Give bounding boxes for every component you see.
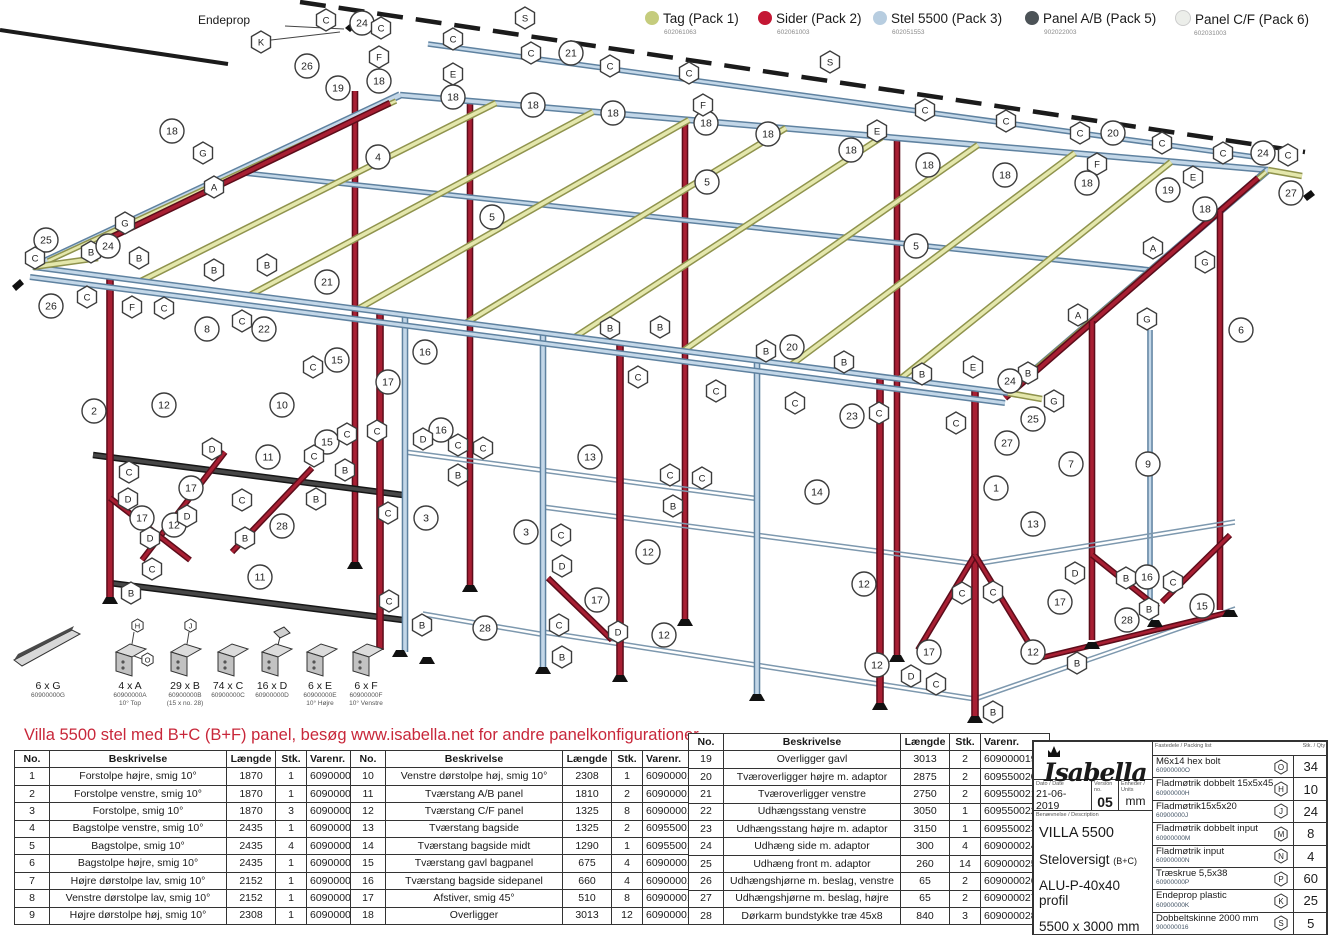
- fastener-qty: 24: [1293, 801, 1327, 822]
- callout-hex-G: G: [194, 142, 213, 164]
- callout-hex-C: C: [1153, 132, 1172, 154]
- svg-text:18: 18: [447, 92, 459, 104]
- cell: 2308: [227, 907, 276, 924]
- svg-text:5: 5: [913, 241, 919, 253]
- cell: 5: [15, 837, 50, 854]
- parts-table-row: 25Udhæng front m. adaptor26014609000025: [689, 855, 1050, 872]
- col-header: Beskrivelse: [724, 734, 901, 751]
- svg-text:C: C: [311, 452, 318, 463]
- svg-text:18: 18: [1199, 204, 1211, 216]
- svg-text:11: 11: [263, 452, 274, 464]
- callout-hex-C: C: [444, 28, 463, 50]
- parts-table-row: 4Bagstolpe venstre, smig 10°243516090000…: [15, 820, 376, 837]
- bracket-part-icon: [250, 618, 294, 680]
- callout-hex-C: C: [953, 582, 972, 604]
- cell: 510: [563, 890, 612, 907]
- col-header: Stk.: [950, 734, 981, 751]
- callout-circle-24: 24: [350, 11, 374, 35]
- parts-table-row: 8Venstre dørstolpe lav, smig 10°21521609…: [15, 890, 376, 907]
- col-header: No.: [689, 734, 724, 751]
- callout-hex-C: C: [693, 467, 712, 489]
- svg-text:O: O: [1278, 762, 1284, 771]
- fastener-name-cell: Træskrue 5,5x3860900000P: [1153, 868, 1273, 889]
- cell: Overligger: [386, 907, 563, 924]
- callout-hex-G: G: [116, 212, 135, 234]
- parts-table-row: 14Tværstang bagside midt12901609550014: [351, 837, 712, 854]
- callout-circle-1: 1: [984, 476, 1008, 500]
- svg-text:18: 18: [999, 170, 1011, 182]
- cell: Forstolpe venstre, smig 10°: [50, 785, 227, 802]
- callout-hex-S: S: [821, 51, 840, 73]
- callout-hex-B: B: [651, 316, 670, 338]
- cell: Udhængsstang venstre: [724, 803, 901, 820]
- fastener-name: Fladmøtrik input: [1156, 847, 1273, 857]
- svg-text:B: B: [211, 266, 217, 277]
- cell: 1: [15, 768, 50, 785]
- fastener-code: 900000016: [1156, 924, 1273, 931]
- svg-text:B: B: [342, 466, 348, 477]
- callout-hex-C: C: [380, 590, 399, 612]
- parts-table-header: No.BeskrivelseLængdeStk.Varenr.: [351, 751, 712, 768]
- svg-text:C: C: [635, 373, 642, 384]
- legend-label: Stel 5500 (Pack 3): [891, 11, 1002, 26]
- callout-circle-24: 24: [998, 369, 1022, 393]
- foot-glyph: [889, 655, 905, 662]
- cell: 14: [950, 855, 981, 872]
- cell: 4: [950, 838, 981, 855]
- cell: 1: [276, 768, 307, 785]
- svg-text:D: D: [125, 495, 132, 506]
- callout-hex-C: C: [233, 489, 252, 511]
- title-block: Isabella Dato / Date 21-06-2019 Version …: [1032, 740, 1328, 935]
- cell: 675: [563, 855, 612, 872]
- svg-text:C: C: [990, 588, 997, 599]
- endeprop-glyph: [12, 279, 24, 291]
- cell: Tværstang A/B panel: [386, 785, 563, 802]
- svg-text:C: C: [1285, 151, 1292, 162]
- svg-text:P: P: [1279, 874, 1284, 883]
- parts-table-row: 22Udhængsstang venstre30501609550022: [689, 803, 1050, 820]
- svg-text:C: C: [556, 621, 563, 632]
- svg-text:M: M: [1278, 830, 1285, 839]
- svg-text:3: 3: [523, 527, 529, 539]
- callout-hex-C: C: [707, 380, 726, 402]
- fastener-badge-cell: P: [1273, 868, 1293, 889]
- svg-text:12: 12: [858, 579, 870, 591]
- cell: 1: [612, 768, 643, 785]
- cell: 3: [950, 907, 981, 924]
- date-value: 21-06-2019: [1034, 787, 1091, 810]
- cell: 840: [901, 907, 950, 924]
- svg-text:18: 18: [845, 145, 857, 157]
- svg-text:24: 24: [356, 18, 368, 30]
- fastener-badge-P: P: [1273, 871, 1289, 887]
- callout-circle-12: 12: [1021, 640, 1045, 664]
- parts-table-header: No.BeskrivelseLængdeStk.Varenr.: [15, 751, 376, 768]
- callout-hex-C: C: [661, 464, 680, 486]
- callout-hex-D: D: [609, 621, 628, 643]
- cell: Tværstang gavl bagpanel: [386, 855, 563, 872]
- pack-color-dot: [1175, 10, 1191, 26]
- svg-text:4: 4: [375, 152, 381, 164]
- pack-legend: Tag (Pack 1)602061063Sider (Pack 2)60206…: [645, 10, 1325, 50]
- cell: 17: [351, 890, 386, 907]
- svg-text:24: 24: [102, 241, 114, 253]
- callout-hex-D: D: [119, 488, 138, 510]
- svg-text:C: C: [126, 468, 133, 479]
- callout-hex-C: C: [1071, 122, 1090, 144]
- cell: Venstre dørstolpe lav, smig 10°: [50, 890, 227, 907]
- pack-color-dot: [1025, 11, 1039, 25]
- cell: Tværoverligger højre m. adaptor: [724, 768, 901, 785]
- callout-hex-B: B: [130, 247, 149, 269]
- packing-list-row: Dobbeltskinne 2000 mm900000016S5: [1153, 913, 1327, 934]
- callout-circle-23: 23: [840, 404, 864, 428]
- callout-hex-C: C: [474, 437, 493, 459]
- cell: Tværoverligger venstre: [724, 786, 901, 803]
- svg-text:C: C: [876, 409, 883, 420]
- svg-text:F: F: [129, 303, 135, 314]
- svg-text:C: C: [667, 471, 674, 482]
- callout-hex-B: B: [757, 340, 776, 362]
- fastener-code: 60900000P: [1156, 879, 1273, 886]
- fastener-badge-S: S: [1273, 915, 1289, 931]
- svg-text:S: S: [827, 58, 833, 69]
- svg-text:C: C: [1170, 578, 1177, 589]
- cell: 1325: [563, 803, 612, 820]
- callout-hex-C: C: [368, 420, 387, 442]
- svg-text:H: H: [135, 621, 140, 630]
- callout-hex-C: C: [449, 434, 468, 456]
- parts-table-row: 13Tværstang bagside13252609550013: [351, 820, 712, 837]
- fastener-name: M6x14 hex bolt: [1156, 757, 1273, 767]
- svg-text:25: 25: [1027, 414, 1039, 426]
- cell: 2: [612, 820, 643, 837]
- cell: 2: [950, 890, 981, 907]
- callout-circle-17: 17: [376, 370, 400, 394]
- cell: 1: [950, 803, 981, 820]
- cell: 4: [15, 820, 50, 837]
- fitting-icons-row: 6 x G60900000G HO4 x A60900000A10° Top J…: [0, 618, 420, 726]
- fitting-item: 6 x F60900000F10° Venstre: [341, 618, 391, 708]
- parts-table-row: 6Bagstolpe højre, smig 10°24351609000006: [15, 855, 376, 872]
- callout-circle-5: 5: [480, 205, 504, 229]
- fastener-name: Træskrue 5,5x38: [1156, 869, 1273, 879]
- callout-hex-C: C: [1214, 142, 1233, 164]
- svg-text:B: B: [763, 347, 769, 358]
- cell: 1325: [563, 820, 612, 837]
- svg-text:16: 16: [1141, 572, 1153, 584]
- svg-text:E: E: [450, 70, 456, 81]
- svg-text:10: 10: [276, 400, 288, 412]
- callout-circle-17: 17: [917, 640, 941, 664]
- description-line: ALU-P-40x40 profil: [1034, 878, 1152, 908]
- svg-text:G: G: [199, 149, 206, 160]
- callout-hex-E: E: [444, 63, 463, 85]
- fastener-name-cell: Fladmøtrik dobbelt input60900000M: [1153, 823, 1273, 844]
- callout-hex-A: A: [1069, 304, 1088, 326]
- fastener-badge-M: M: [1273, 826, 1289, 842]
- cell: 27: [689, 890, 724, 907]
- cell: 10: [351, 768, 386, 785]
- callout-hex-F: F: [123, 296, 142, 318]
- svg-text:9: 9: [1145, 459, 1151, 471]
- callout-circle-27: 27: [995, 431, 1019, 455]
- callout-circle-13: 13: [1021, 512, 1045, 536]
- callout-hex-C: C: [786, 392, 805, 414]
- endeprop-label: Endeprop: [198, 13, 250, 27]
- fitting-item: 74 x C60900000C: [206, 618, 250, 700]
- svg-text:C: C: [239, 317, 246, 328]
- cell: 25: [689, 855, 724, 872]
- parts-table-1: No.BeskrivelseLængdeStk.Varenr.1Forstolp…: [14, 750, 376, 925]
- svg-text:18: 18: [922, 160, 934, 172]
- svg-text:8: 8: [204, 324, 210, 336]
- cell: 16: [351, 872, 386, 889]
- svg-text:C: C: [933, 680, 940, 691]
- cell: 8: [612, 803, 643, 820]
- svg-text:21: 21: [321, 277, 333, 289]
- svg-text:C: C: [953, 419, 960, 430]
- svg-text:S: S: [522, 14, 528, 25]
- parts-table-row: 24Udhæng side m. adaptor3004609000024: [689, 838, 1050, 855]
- svg-text:26: 26: [301, 61, 313, 73]
- callout-circle-3: 3: [414, 506, 438, 530]
- callout-hex-K: K: [252, 31, 271, 53]
- fastener-code: 60900000J: [1156, 812, 1273, 819]
- legend-code: 602061063: [664, 29, 739, 36]
- fitting-code: 60900000A: [104, 692, 156, 700]
- callout-circle-18: 18: [756, 122, 780, 146]
- callout-circle-20: 20: [780, 335, 804, 359]
- svg-text:B: B: [670, 502, 676, 513]
- svg-text:20: 20: [786, 342, 798, 354]
- svg-text:C: C: [607, 62, 614, 73]
- svg-text:18: 18: [373, 76, 385, 88]
- cell: 8: [612, 890, 643, 907]
- cell: 2: [612, 785, 643, 802]
- callout-circle-18: 18: [441, 85, 465, 109]
- version-value: 05: [1092, 793, 1118, 810]
- fitting-qty: 16 x D: [250, 680, 294, 692]
- cell: 3150: [901, 820, 950, 837]
- svg-text:S: S: [1279, 919, 1284, 928]
- parts-table-row: 16Tværstang bagside sidepanel66046090000…: [351, 872, 712, 889]
- cell: 2: [950, 768, 981, 785]
- svg-text:C: C: [84, 293, 91, 304]
- svg-text:C: C: [374, 427, 381, 438]
- svg-text:H: H: [1278, 785, 1284, 794]
- callout-hex-C: C: [1164, 571, 1183, 593]
- svg-text:G: G: [121, 219, 128, 230]
- callout-hex-D: D: [178, 505, 197, 527]
- foot-glyph: [102, 597, 118, 604]
- fastener-badge-cell: J: [1273, 801, 1293, 822]
- callout-hex-C: C: [379, 502, 398, 524]
- foot-glyph: [612, 675, 628, 682]
- svg-text:13: 13: [1027, 519, 1039, 531]
- callout-circle-22: 22: [252, 317, 276, 341]
- svg-text:5: 5: [489, 212, 495, 224]
- cell: 2750: [901, 786, 950, 803]
- callout-hex-C: C: [338, 423, 357, 445]
- callout-hex-C: C: [1279, 144, 1298, 166]
- fitting-code: 60900000G: [10, 692, 86, 700]
- svg-text:G: G: [1201, 258, 1208, 269]
- callout-hex-C: C: [680, 62, 699, 84]
- fastener-name-cell: Fladmøtrik input60900000N: [1153, 846, 1273, 867]
- fitting-qty: 6 x E: [295, 680, 345, 692]
- callout-circle-7: 7: [1059, 452, 1083, 476]
- svg-text:D: D: [559, 562, 566, 573]
- parts-table-header: No.BeskrivelseLængdeStk.Varenr.: [689, 734, 1050, 751]
- svg-text:B: B: [1025, 369, 1031, 380]
- description-label: Benævnelse / Description: [1034, 811, 1152, 818]
- packing-list-row: Fladmøtrik input60900000NN4: [1153, 846, 1327, 868]
- cell: 4: [612, 872, 643, 889]
- part-callouts: K24CCF261918GA418SC21CCCE181818181818181…: [26, 7, 1304, 723]
- callout-hex-E: E: [1184, 166, 1203, 188]
- svg-text:C: C: [161, 304, 168, 315]
- fastener-badge-O: O: [142, 653, 153, 666]
- callout-hex-C: C: [550, 614, 569, 636]
- fitting-qty: 29 x B: [159, 680, 211, 692]
- callout-hex-B: B: [913, 363, 932, 385]
- fastener-name: Fladmøtrik dobbelt 15x5x45: [1156, 779, 1273, 789]
- svg-text:N: N: [1278, 852, 1284, 861]
- cell: 12: [351, 803, 386, 820]
- callout-circle-16: 16: [1135, 565, 1159, 589]
- fastener-name-cell: M6x14 hex bolt60900000O: [1153, 756, 1273, 777]
- svg-text:15: 15: [321, 437, 333, 449]
- callout-circle-18: 18: [916, 153, 940, 177]
- svg-text:6: 6: [1238, 325, 1244, 337]
- parts-table-row: 18Overligger301312609000018: [351, 907, 712, 924]
- callout-hex-B: B: [122, 582, 141, 604]
- callout-hex-C: C: [305, 445, 324, 467]
- svg-text:18: 18: [1081, 178, 1093, 190]
- legend-code: 602051553: [892, 29, 1002, 36]
- svg-text:24: 24: [1257, 148, 1269, 160]
- packing-list-header: Fastedele / Packing list Stk. / Qty: [1153, 742, 1327, 756]
- fastener-code: 60900000O: [1156, 767, 1273, 774]
- svg-text:A: A: [211, 183, 218, 194]
- description-line: 5500 x 3000 mm: [1034, 919, 1152, 934]
- callout-circle-12: 12: [865, 653, 889, 677]
- callout-circle-21: 21: [559, 41, 583, 65]
- col-header: No.: [15, 751, 50, 768]
- callout-hex-C: C: [372, 17, 391, 39]
- cell: 20: [689, 768, 724, 785]
- fastener-qty: 4: [1293, 846, 1327, 867]
- parts-table-row: 10Venstre dørstolpe høj, smig 10°2308160…: [351, 768, 712, 785]
- svg-text:17: 17: [923, 647, 935, 659]
- fastener-badge-H: H: [1273, 781, 1289, 797]
- callout-circle-11: 11: [248, 565, 272, 589]
- callout-hex-E: E: [868, 120, 887, 142]
- cell: 1: [276, 890, 307, 907]
- bracket-part-icon: [295, 618, 345, 680]
- cell: 1: [276, 785, 307, 802]
- packing-list-row: Fladmøtrik15x5x2060900000JJ24: [1153, 801, 1327, 823]
- svg-text:19: 19: [332, 83, 344, 95]
- parts-table-3: No.BeskrivelseLængdeStk.Varenr.19Overlig…: [688, 733, 1050, 925]
- callout-hex-D: D: [414, 428, 433, 450]
- callout-circle-24: 24: [1251, 141, 1275, 165]
- description-lines: VILLA 5500Steloversigt (B+C)ALU-P-40x40 …: [1034, 825, 1152, 934]
- svg-text:12: 12: [1027, 647, 1039, 659]
- fitting-code: 60900000E: [295, 692, 345, 700]
- parts-table-row: 9Højre dørstolpe høj, smig 10°2308160900…: [15, 907, 376, 924]
- fitting-item: 16 x D60900000D: [250, 618, 294, 700]
- description-line: Steloversigt (B+C): [1034, 852, 1152, 867]
- svg-text:12: 12: [871, 660, 883, 672]
- fastener-badge-O: O: [1273, 759, 1289, 775]
- callout-circle-12: 12: [852, 572, 876, 596]
- packing-list-row: Fladmøtrik dobbelt input60900000MM8: [1153, 823, 1327, 845]
- callout-circle-28: 28: [473, 616, 497, 640]
- callout-hex-C: C: [629, 366, 648, 388]
- fastener-badge-cell: K: [1273, 890, 1293, 911]
- svg-text:C: C: [1220, 149, 1227, 160]
- cell: 1: [276, 855, 307, 872]
- svg-text:18: 18: [607, 108, 619, 120]
- svg-text:C: C: [1159, 139, 1166, 150]
- legend-label: Tag (Pack 1): [663, 11, 739, 26]
- fastener-qty: 25: [1293, 890, 1327, 911]
- parts-table-row: 19Overligger gavl30132609000019: [689, 751, 1050, 768]
- cell: 6: [15, 855, 50, 872]
- callout-circle-12: 12: [152, 393, 176, 417]
- callout-circle-18: 18: [367, 69, 391, 93]
- svg-text:E: E: [1190, 173, 1196, 184]
- callout-hex-B: B: [1117, 567, 1136, 589]
- endeprop-leader-line: [271, 32, 340, 40]
- col-header: Længde: [563, 751, 612, 768]
- callout-hex-B: B: [449, 464, 468, 486]
- cell: 3013: [563, 907, 612, 924]
- callout-hex-B: B: [553, 646, 572, 668]
- svg-text:14: 14: [811, 487, 823, 499]
- cell: 3013: [901, 751, 950, 768]
- callout-hex-C: C: [601, 55, 620, 77]
- callout-hex-D: D: [203, 438, 222, 460]
- fastener-code: 60900000N: [1156, 857, 1273, 864]
- callout-circle-24: 24: [96, 234, 120, 258]
- fastener-name-cell: Fladmøtrik15x5x2060900000J: [1153, 801, 1273, 822]
- callout-hex-C: C: [916, 99, 935, 121]
- callout-circle-20: 20: [1101, 121, 1125, 145]
- svg-text:B: B: [919, 370, 925, 381]
- svg-text:B: B: [1146, 605, 1152, 616]
- col-header: Stk.: [612, 751, 643, 768]
- legend-label: Panel C/F (Pack 6): [1195, 12, 1309, 27]
- cell: 3: [276, 803, 307, 820]
- cell: 21: [689, 786, 724, 803]
- svg-text:G: G: [1143, 315, 1150, 326]
- bracket-part-icon: HO: [104, 618, 156, 680]
- cell: 4: [276, 837, 307, 854]
- svg-text:23: 23: [846, 411, 858, 423]
- legend-item: Panel C/F (Pack 6)602031003: [1175, 10, 1309, 37]
- callout-hex-G: G: [1138, 308, 1157, 330]
- svg-text:K: K: [1279, 897, 1285, 906]
- fitting-note: 10° Venstre: [341, 700, 391, 708]
- svg-text:17: 17: [185, 483, 197, 495]
- svg-text:25: 25: [40, 235, 52, 247]
- callout-hex-C: C: [870, 402, 889, 424]
- cell: 65: [901, 873, 950, 890]
